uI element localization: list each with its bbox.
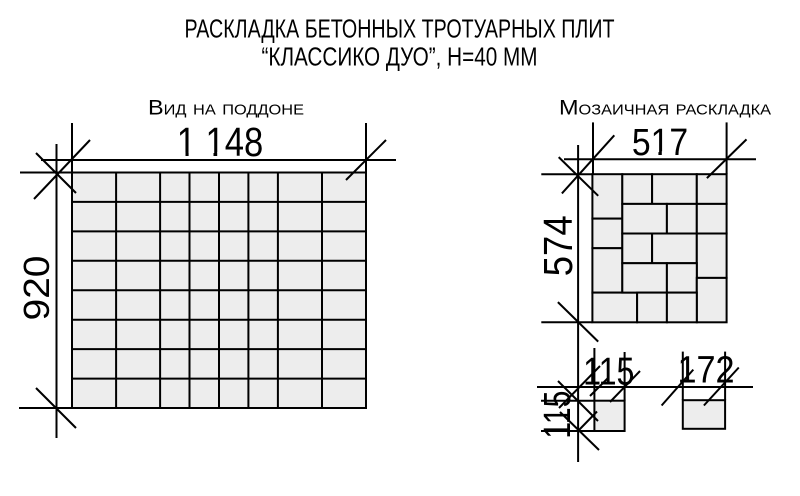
- svg-text:574: 574: [535, 215, 581, 276]
- svg-text:“КЛАССИКО ДУО”, Н=40 ММ: “КЛАССИКО ДУО”, Н=40 ММ: [262, 44, 538, 72]
- svg-text:Вид на поддоне: Вид на поддоне: [148, 96, 304, 120]
- svg-text:115: 115: [583, 351, 634, 394]
- svg-text:517: 517: [632, 122, 688, 164]
- svg-text:РАСКЛАДКА БЕТОННЫХ ТРОТУАРНЫХ: РАСКЛАДКА БЕТОННЫХ ТРОТУАРНЫХ ПЛИТ: [185, 15, 615, 43]
- svg-text:172: 172: [677, 350, 734, 392]
- svg-text:920: 920: [16, 256, 57, 321]
- svg-text:115: 115: [537, 391, 579, 439]
- svg-text:1 148: 1 148: [177, 119, 264, 165]
- svg-text:Мозаичная раскладка: Мозаичная раскладка: [559, 96, 771, 120]
